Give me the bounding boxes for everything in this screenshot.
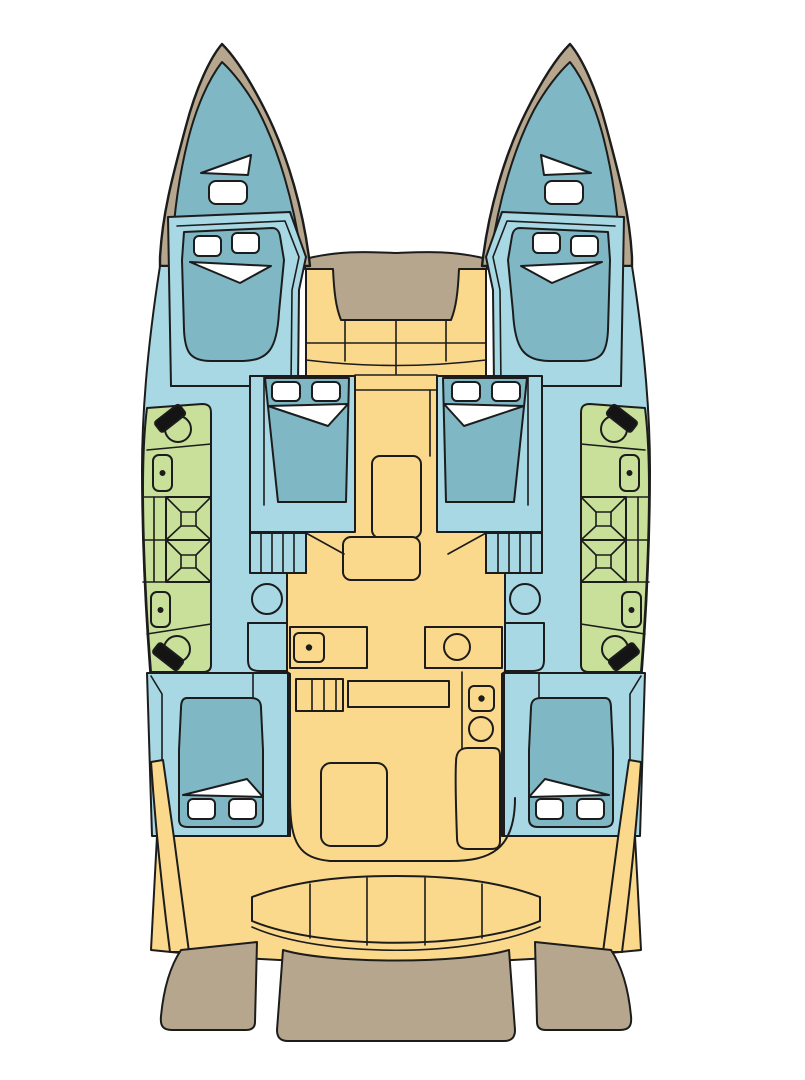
pillow <box>194 236 221 256</box>
aft-platform <box>277 950 515 1041</box>
galley-counter-starboard <box>425 627 502 668</box>
sink-drain-icon <box>159 608 163 612</box>
forepeak-window-icon <box>209 181 247 204</box>
pillow <box>232 233 259 253</box>
cockpit-bench <box>252 876 540 943</box>
pillow <box>312 382 340 401</box>
pillow <box>229 799 256 819</box>
deck-plan-canvas <box>0 0 805 1080</box>
cockpit-table <box>321 763 387 846</box>
salon-island-counter <box>343 537 420 580</box>
pillow <box>272 382 300 401</box>
pillow <box>188 799 215 819</box>
chart-seat <box>456 748 500 849</box>
sink-drain-icon <box>161 471 165 475</box>
catamaran-floorplan <box>0 0 805 1080</box>
stern-swim-step <box>161 942 257 1030</box>
galley-module <box>372 456 421 538</box>
appliance-dot-icon <box>479 696 483 700</box>
sink-drain-icon <box>307 645 311 649</box>
